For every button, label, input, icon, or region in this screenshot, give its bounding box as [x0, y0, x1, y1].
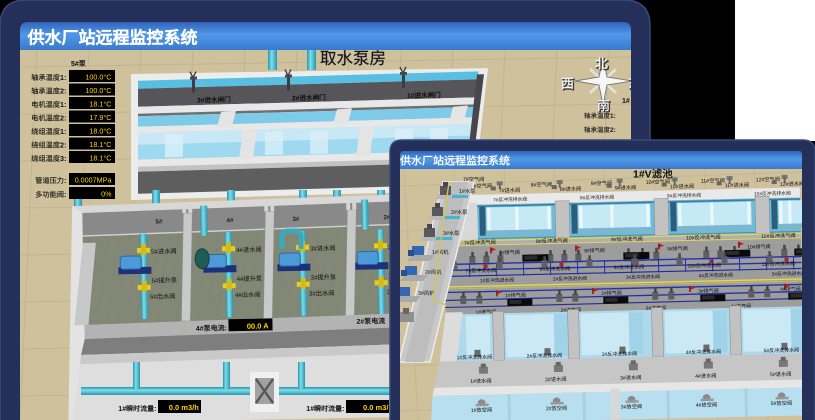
svg-text:3#: 3#	[418, 291, 424, 297]
svg-text:3#: 3#	[620, 375, 626, 381]
svg-text:3#: 3#	[309, 291, 317, 298]
svg-text::: :	[64, 190, 66, 199]
svg-text:0.0 m3/h: 0.0 m3/h	[169, 403, 199, 412]
svg-text:2#: 2#	[292, 95, 300, 102]
svg-text:3#: 3#	[311, 274, 319, 281]
svg-text:10#: 10#	[646, 180, 655, 186]
svg-text:2#: 2#	[546, 406, 552, 412]
svg-text:2:: 2:	[610, 127, 616, 134]
svg-text:5#: 5#	[71, 61, 79, 68]
svg-text:9#: 9#	[591, 181, 597, 187]
svg-text:7#: 7#	[493, 197, 499, 203]
svg-text:3#: 3#	[602, 352, 608, 358]
svg-text:1#: 1#	[470, 379, 476, 385]
svg-text:0%: 0%	[101, 190, 112, 199]
svg-text:18.1°C: 18.1°C	[89, 140, 111, 149]
svg-text:8#: 8#	[531, 182, 537, 188]
svg-text:2:: 2:	[60, 87, 66, 96]
svg-text:1:: 1:	[60, 100, 66, 109]
svg-text:3#: 3#	[197, 97, 205, 104]
svg-text:5#: 5#	[151, 249, 159, 256]
svg-text:8#: 8#	[584, 248, 590, 254]
svg-text:8#: 8#	[540, 267, 546, 273]
svg-text:1#: 1#	[471, 408, 477, 414]
svg-text:0.0 m3/: 0.0 m3/	[363, 403, 389, 412]
svg-text:10#: 10#	[670, 184, 679, 190]
svg-text:1:: 1:	[60, 73, 66, 82]
svg-text:1#: 1#	[306, 406, 314, 413]
svg-text:5#: 5#	[772, 271, 778, 277]
svg-text:4#: 4#	[685, 350, 691, 356]
svg-text:4#: 4#	[695, 374, 701, 380]
svg-text:5#: 5#	[763, 348, 769, 354]
svg-text:4#: 4#	[237, 276, 245, 283]
svg-text:2#: 2#	[425, 270, 431, 276]
svg-text:7#: 7#	[464, 240, 470, 246]
svg-text:4#: 4#	[699, 273, 705, 279]
svg-text:3#: 3#	[443, 231, 449, 237]
svg-text:8#: 8#	[580, 195, 586, 201]
svg-text:10#: 10#	[686, 235, 695, 241]
svg-text:00.0 A: 00.0 A	[247, 321, 270, 330]
svg-text:9#: 9#	[667, 246, 673, 252]
svg-text:1:: 1:	[610, 113, 616, 120]
svg-text:3:: 3:	[60, 154, 66, 163]
svg-text:7#: 7#	[499, 188, 505, 194]
svg-text:18.1°C: 18.1°C	[89, 100, 111, 109]
svg-text:5#: 5#	[152, 278, 160, 285]
svg-text:10#: 10#	[747, 244, 756, 250]
svg-text:11#: 11#	[762, 262, 770, 268]
svg-text:2#: 2#	[601, 291, 607, 297]
svg-text:1:: 1:	[60, 127, 66, 136]
svg-text:11#: 11#	[725, 183, 734, 189]
svg-text:1#: 1#	[459, 189, 465, 195]
svg-text:3#: 3#	[292, 216, 300, 223]
svg-text:1#: 1#	[622, 98, 630, 105]
svg-text:100.0°C: 100.0°C	[85, 73, 111, 82]
svg-text:8#: 8#	[536, 239, 542, 245]
svg-text:1#: 1#	[118, 406, 126, 413]
svg-text:11#: 11#	[701, 178, 710, 184]
svg-text:4#: 4#	[196, 326, 204, 333]
svg-text:1#: 1#	[457, 355, 463, 361]
svg-text:100.0°C: 100.0°C	[85, 86, 111, 95]
svg-text:4#: 4#	[236, 247, 244, 254]
svg-text:5#: 5#	[150, 294, 158, 301]
svg-text:2:: 2:	[60, 114, 66, 123]
svg-text:1#: 1#	[505, 293, 511, 299]
svg-text:12#: 12#	[780, 182, 789, 188]
svg-text:9#: 9#	[615, 186, 621, 192]
svg-text:1#: 1#	[432, 250, 438, 256]
svg-text:7#: 7#	[466, 268, 472, 274]
svg-text:17.9°C: 17.9°C	[89, 113, 111, 122]
svg-text:3#: 3#	[621, 404, 627, 410]
svg-text:9#: 9#	[614, 265, 620, 271]
svg-text:5#: 5#	[770, 372, 776, 378]
svg-text:4#: 4#	[226, 217, 234, 224]
svg-text:2#: 2#	[553, 276, 559, 282]
svg-text:3#: 3#	[698, 289, 704, 295]
svg-text:4#: 4#	[780, 287, 786, 293]
svg-text:5#: 5#	[155, 218, 163, 225]
svg-text:7#: 7#	[463, 177, 469, 183]
svg-text:1#V: 1#V	[633, 169, 652, 181]
svg-text::: :	[225, 325, 227, 332]
svg-text:2:: 2:	[60, 141, 66, 150]
svg-text:2#: 2#	[527, 354, 533, 360]
svg-text:8#: 8#	[560, 187, 566, 193]
svg-text:5#: 5#	[771, 401, 777, 407]
svg-text:9#: 9#	[611, 237, 617, 243]
svg-text:1#: 1#	[480, 278, 486, 284]
svg-text:12#: 12#	[756, 177, 765, 183]
svg-text::: :	[154, 406, 156, 413]
svg-text:4#: 4#	[696, 403, 702, 409]
svg-text:2#: 2#	[545, 377, 551, 383]
svg-text:4#: 4#	[235, 292, 243, 299]
svg-text:1#: 1#	[407, 93, 415, 100]
svg-text::: :	[342, 406, 344, 413]
svg-text:11#: 11#	[761, 234, 770, 240]
svg-text:3#: 3#	[310, 246, 318, 253]
svg-text:0.0007MPa: 0.0007MPa	[75, 176, 112, 185]
svg-text:7#: 7#	[499, 250, 505, 256]
svg-text:18.1°C: 18.1°C	[89, 154, 111, 163]
svg-text:10#: 10#	[688, 263, 697, 269]
svg-text:3#: 3#	[626, 275, 632, 281]
svg-text:18.0°C: 18.0°C	[89, 127, 111, 136]
svg-text:2#: 2#	[451, 210, 457, 216]
svg-text::: :	[64, 176, 66, 185]
svg-text:2#: 2#	[356, 319, 364, 326]
